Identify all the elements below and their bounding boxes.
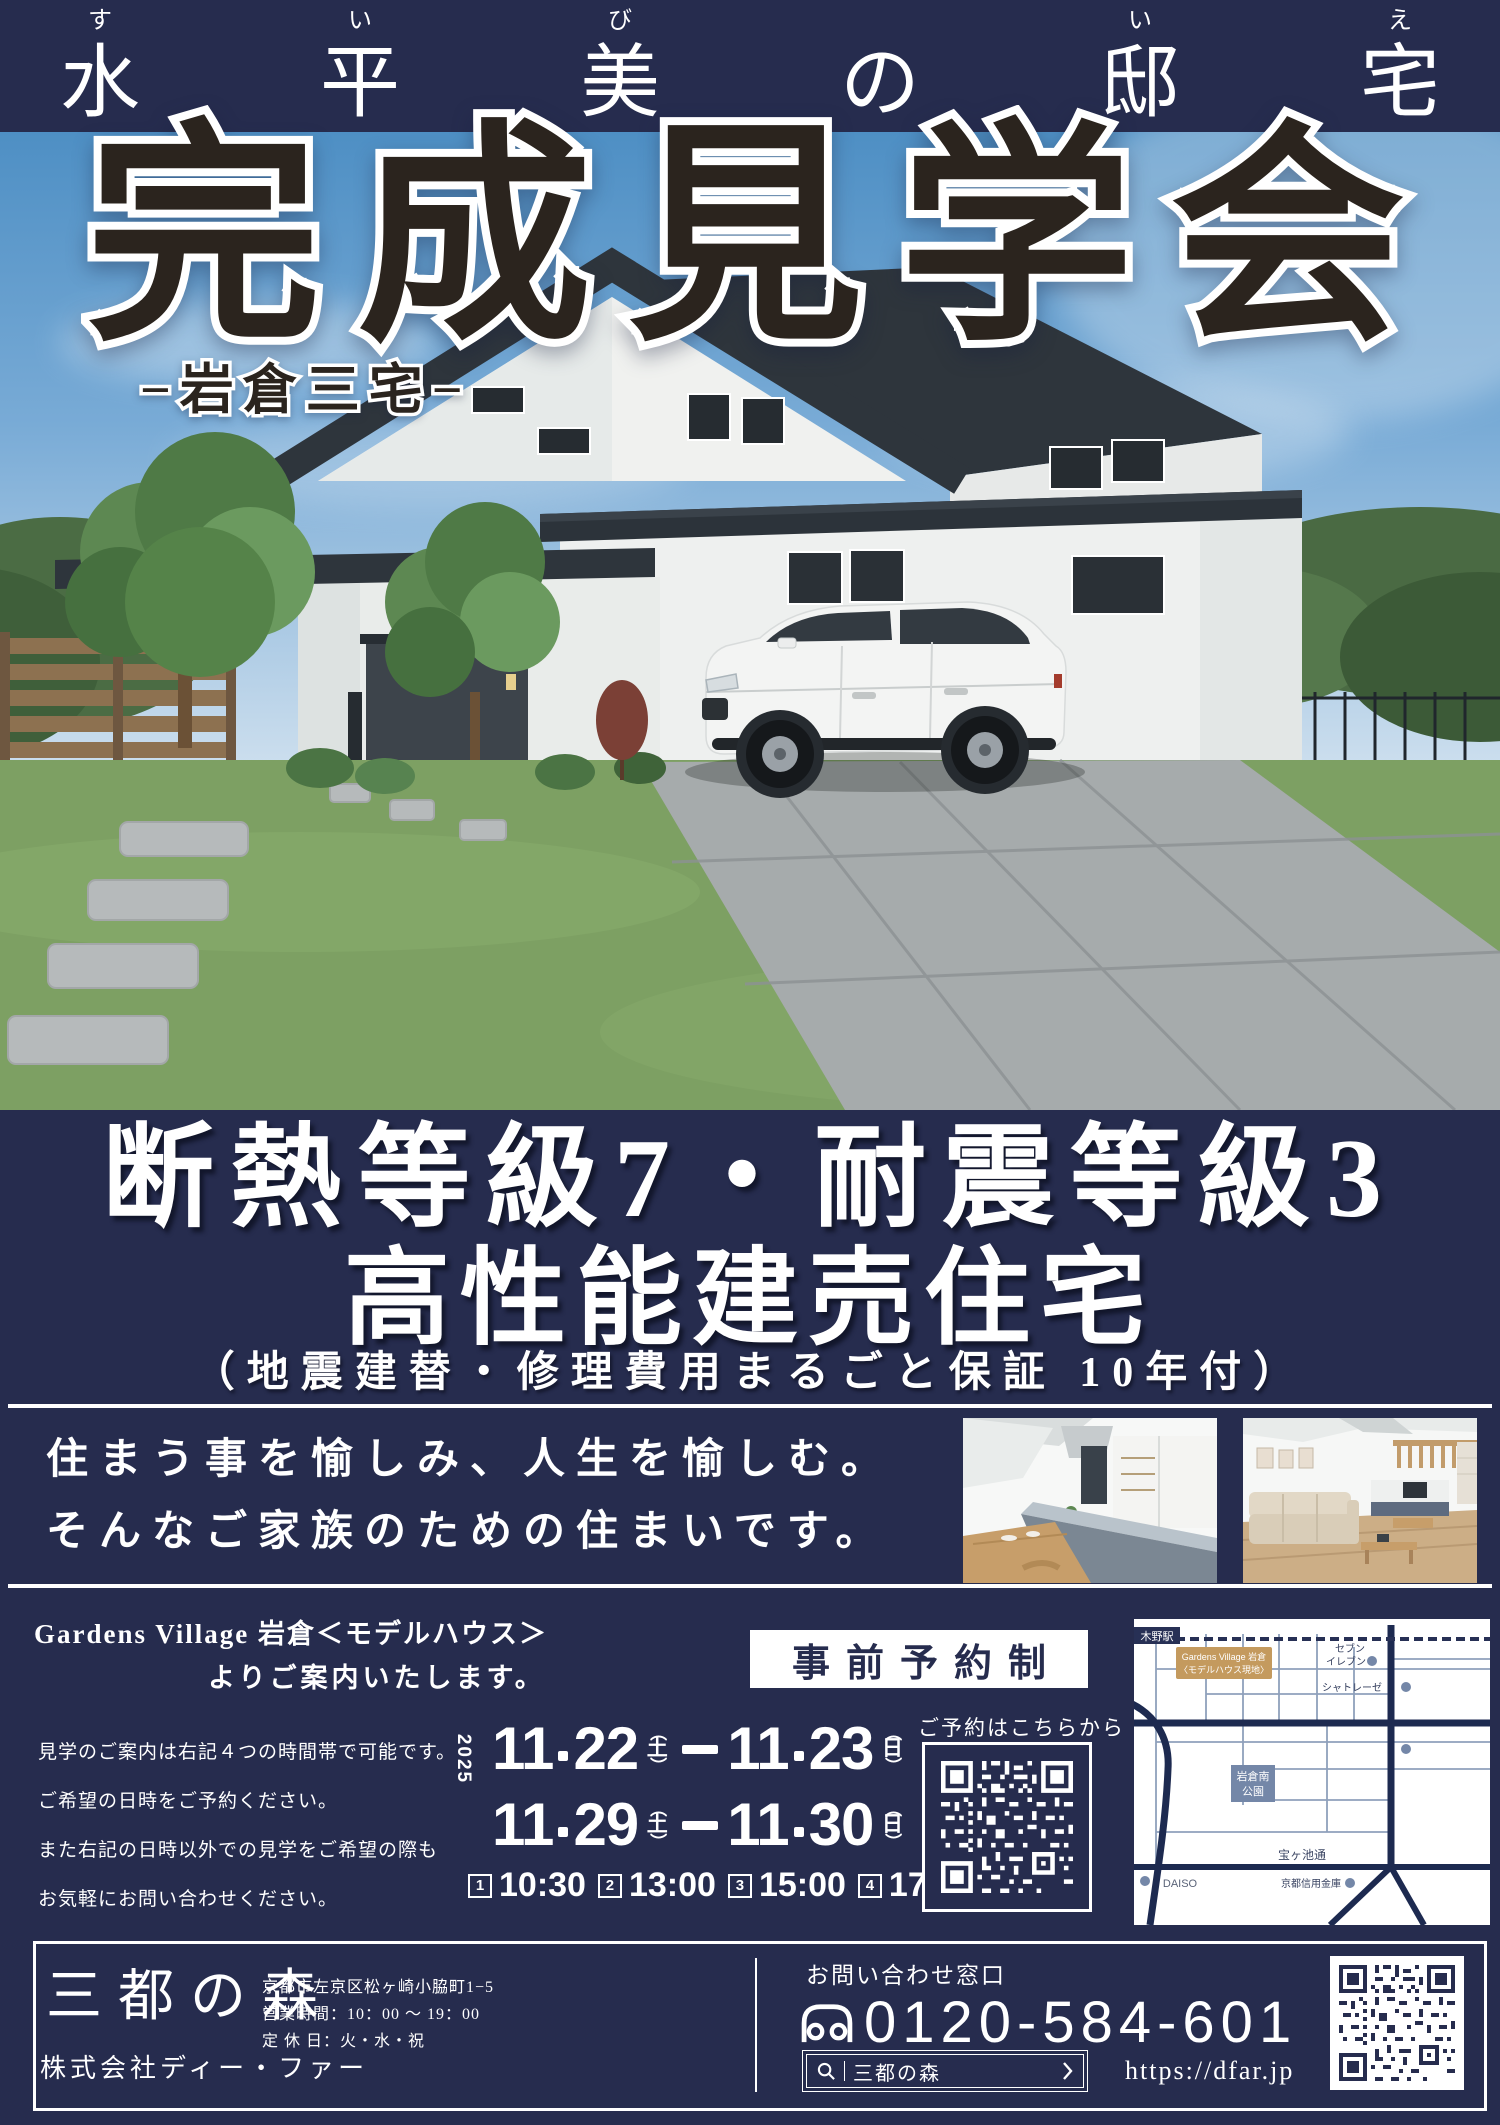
weekday: （ 土 ） [641, 1728, 673, 1770]
slot-number: 3 [728, 1874, 752, 1898]
slot-number: 1 [468, 1874, 492, 1898]
date-dot [558, 1827, 568, 1837]
interior-photo-living [1243, 1418, 1477, 1583]
date-row: 11 22 （ 土 ） 11 23 （ 日 ） [492, 1714, 908, 1784]
message-line-1: 住まう事を愉しみ、人生を愉しむ。 [46, 1434, 894, 1486]
date-day: 23 [809, 1719, 874, 1779]
map-site-label: Gardens Village 岩倉 [1182, 1651, 1266, 1662]
website-url: https://dfar.jp [1125, 2056, 1294, 2086]
date-dot [558, 1751, 568, 1761]
time-slots: 1 10:30 2 13:00 3 15:00 4 17:00 [468, 1866, 976, 1905]
website-qr-code [1330, 1956, 1464, 2090]
date-dot [794, 1751, 804, 1761]
freedial-phone-icon [800, 2002, 854, 2044]
hero-section: 完成見学会 完成見学会 −岩倉三宅− −岩倉三宅− [0, 132, 1500, 1110]
date-range-dash [682, 1745, 718, 1754]
holiday-line: 定 休 日：火・水・祝 [262, 2028, 494, 2055]
furigana: え [1388, 4, 1412, 38]
date-range-dash [682, 1821, 718, 1830]
map-poi-bank: 京都信用金庫 [1281, 1877, 1341, 1890]
note-line: お気軽にお問い合わせください。 [38, 1875, 456, 1924]
weekday: （ 土 ） [641, 1804, 673, 1846]
phone-row: 0120-584-601 [800, 1994, 1297, 2052]
map-park-label: 岩倉南 [1237, 1769, 1270, 1783]
note-line: ご希望の日時をご予約ください。 [38, 1777, 456, 1826]
viewing-notes: 見学のご案内は右記４つの時間帯で可能です。 ご希望の日時をご予約ください。 また… [38, 1728, 456, 1924]
contact-label: お問い合わせ窓口 [806, 1956, 1006, 1990]
venue-line-1: Gardens Village 岩倉＜モデルハウス＞ [34, 1612, 548, 1651]
qr-code-icon [1339, 1965, 1455, 2081]
reservation-qr-code [922, 1742, 1092, 1912]
event-dates: 11 22 （ 土 ） 11 23 （ 日 ） 11 29 （ 土 ） [492, 1714, 908, 1866]
furigana: び [608, 4, 632, 38]
note-line: 見学のご案内は右記４つの時間帯で可能です。 [38, 1728, 456, 1777]
furigana: す [88, 4, 112, 38]
chevron-right-icon [1063, 2062, 1073, 2080]
message-line-2: そんなご家族のための住まいです。 [46, 1506, 889, 1558]
date-month: 11 [727, 1795, 788, 1855]
flyer-poster: す 水 い 平 び 美 の い 邸 え 宅 [0, 0, 1500, 2125]
date-row: 11 29 （ 土 ） 11 30 （ 日 ） [492, 1790, 908, 1860]
hours-line: 営業時間：10：00 〜 19：00 [262, 2001, 494, 2028]
date-month: 11 [492, 1795, 553, 1855]
weekday: （ 日 ） [876, 1728, 908, 1770]
interior-photo-kitchen [963, 1418, 1217, 1583]
date-day: 22 [573, 1719, 638, 1779]
note-line: また右記の日時以外での見学をご希望の際も [38, 1826, 456, 1875]
map-poi-seven-eleven: イレブン [1326, 1655, 1366, 1668]
company-address-block: 京都市左京区松ヶ崎小脇町1−5 営業時間：10：00 〜 19：00 定 休 日… [262, 1974, 494, 2055]
search-keyword: 三都の森 [853, 2057, 941, 2086]
furigana: い [348, 4, 372, 38]
map-illustration: 木野駅 Gardens Village 岩倉 〈モデルハウス現地〉 セブン イレ… [1134, 1619, 1490, 1925]
map-park-label: 公園 [1242, 1785, 1264, 1798]
slot-time: 13:00 [629, 1866, 716, 1905]
address-line: 京都市左京区松ヶ崎小脇町1−5 [262, 1974, 494, 2001]
event-subtitle: −岩倉三宅− −岩倉三宅− [140, 360, 472, 420]
date-month: 11 [492, 1719, 553, 1779]
event-year: 2025 [452, 1734, 474, 1784]
living-illustration [1243, 1418, 1477, 1583]
date-day: 29 [573, 1795, 638, 1855]
map-road-label: 宝ヶ池通 [1278, 1848, 1326, 1862]
search-icon [817, 2062, 836, 2081]
map-poi-seven-eleven: セブン [1335, 1642, 1365, 1655]
advance-reservation-badge: 事前予約制 [750, 1630, 1088, 1688]
map-site-label: 〈モデルハウス現地〉 [1179, 1664, 1269, 1675]
qr-code-icon [941, 1761, 1073, 1893]
time-slot: 1 10:30 [468, 1866, 586, 1905]
warranty-note: （地震建替・修理費用まるごと保証 10年付） [0, 1348, 1500, 1398]
map-poi-daiso: DAISO [1163, 1878, 1198, 1890]
venue-line-2: よりご案内いたします。 [208, 1656, 546, 1695]
slot-time: 10:30 [499, 1866, 586, 1905]
kitchen-illustration [963, 1418, 1217, 1583]
date-month: 11 [727, 1719, 788, 1779]
access-map: 木野駅 Gardens Village 岩倉 〈モデルハウス現地〉 セブン イレ… [1134, 1619, 1490, 1925]
slot-time: 15:00 [759, 1866, 846, 1905]
slot-number: 2 [598, 1874, 622, 1898]
furigana: い [1128, 4, 1152, 38]
search-separator [844, 2061, 845, 2081]
time-slot: 2 13:00 [598, 1866, 716, 1905]
reservation-qr-label: ご予約はこちらから [918, 1712, 1096, 1742]
time-slot: 3 15:00 [728, 1866, 846, 1905]
map-station-label: 木野駅 [1141, 1630, 1174, 1643]
phone-number: 0120-584-601 [864, 1994, 1297, 2052]
date-day: 30 [809, 1795, 874, 1855]
divider [8, 1584, 1492, 1588]
spec-subheadline: 高性能建売住宅 [0, 1242, 1500, 1358]
footer-divider [755, 1958, 757, 2092]
search-box-graphic: 三都の森 [806, 2054, 1084, 2088]
date-dot [794, 1827, 804, 1837]
map-poi-chateraise: シャトレーゼ [1322, 1682, 1382, 1694]
event-title: 完成見学会 完成見学会 [86, 122, 1441, 357]
divider [8, 1404, 1492, 1408]
spec-headline: 断熱等級7・耐震等級3 [0, 1116, 1500, 1242]
slot-number: 4 [858, 1874, 882, 1898]
weekday: （ 日 ） [876, 1804, 908, 1846]
